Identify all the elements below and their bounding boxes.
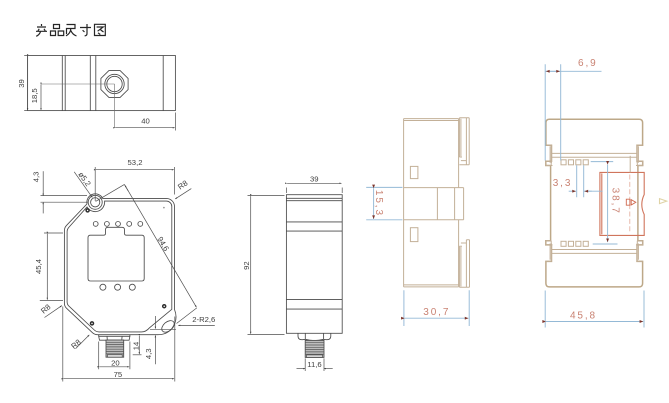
svg-text:20: 20 <box>111 358 120 367</box>
svg-text:39: 39 <box>310 174 319 183</box>
svg-text:14: 14 <box>131 341 140 350</box>
svg-text:92: 92 <box>242 261 251 270</box>
svg-text:15,3: 15,3 <box>373 190 384 217</box>
svg-text:39: 39 <box>17 79 26 88</box>
svg-text:6,9: 6,9 <box>578 58 598 69</box>
svg-text:30,7: 30,7 <box>423 307 450 318</box>
svg-text:4,3: 4,3 <box>144 348 153 359</box>
svg-text:45,4: 45,4 <box>34 258 43 274</box>
svg-text:40: 40 <box>141 117 150 126</box>
svg-text:2-R2,6: 2-R2,6 <box>192 315 215 324</box>
svg-text:18,5: 18,5 <box>30 88 39 103</box>
svg-text:53,2: 53,2 <box>128 158 143 167</box>
svg-text:38,7: 38,7 <box>610 188 621 215</box>
svg-text:11,6: 11,6 <box>307 360 321 369</box>
svg-text:4,3: 4,3 <box>31 172 40 183</box>
svg-text:3,3: 3,3 <box>553 178 573 189</box>
svg-text:45,8: 45,8 <box>570 311 597 322</box>
svg-text:75: 75 <box>114 370 123 379</box>
